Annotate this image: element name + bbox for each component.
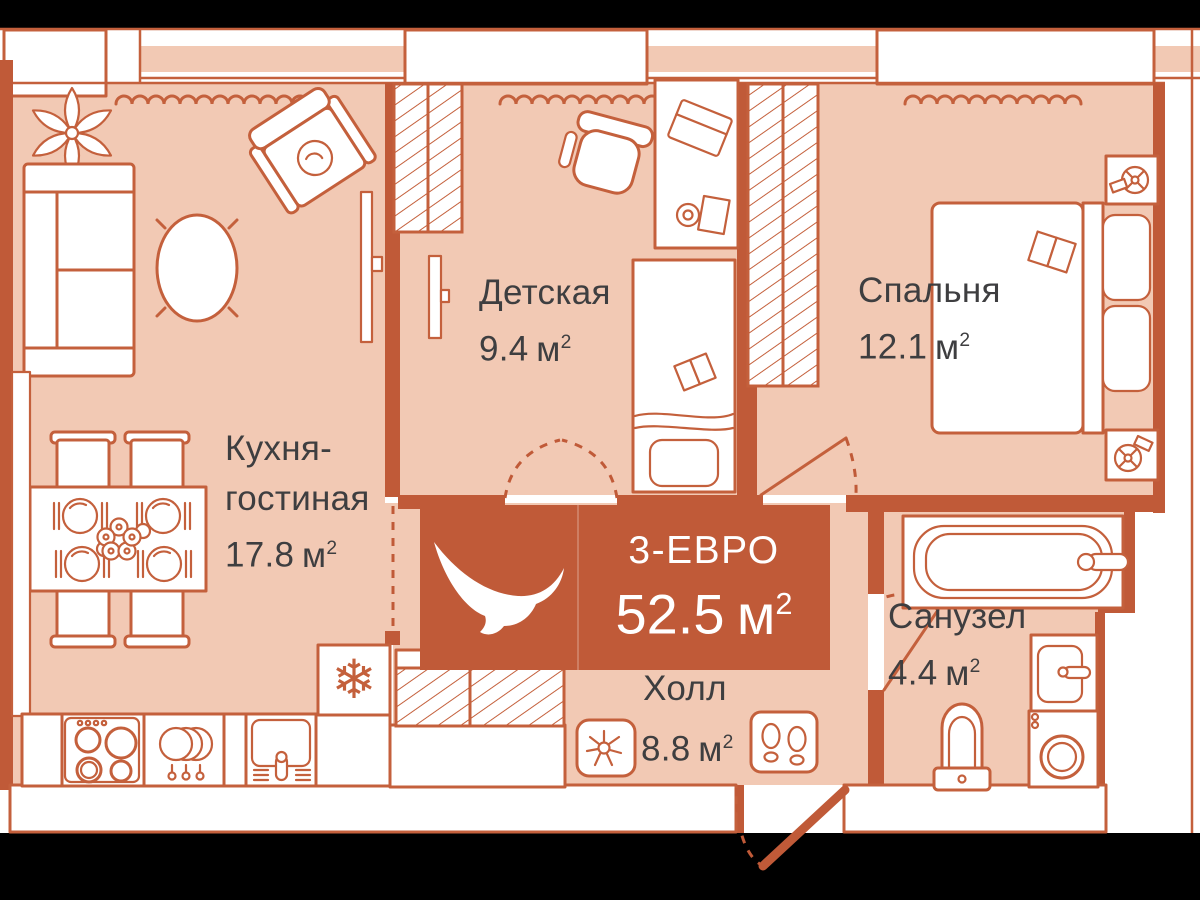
room-area: 17.8м2: [225, 524, 370, 581]
nightstand: [1106, 156, 1158, 204]
snowflake-icon: ❄: [331, 650, 376, 710]
window-sill: [647, 46, 877, 72]
bedroom-wardrobe: [748, 84, 818, 386]
fridge: ❄: [318, 645, 390, 715]
room-name: Холл: [620, 664, 750, 714]
hall-closet-niche: [390, 725, 565, 787]
stove: [65, 718, 139, 782]
room-name: Кухня-: [225, 424, 370, 474]
nursery-wardrobe: [394, 84, 462, 232]
room-name: Санузел: [888, 592, 1026, 642]
room-label-nursery: Детская 9.4м2: [479, 268, 611, 375]
room-name: Детская: [479, 268, 611, 318]
window-sill: [140, 46, 405, 72]
bottom-wall-band: [10, 785, 1106, 832]
room-label-bathroom: Санузел 4.4м2: [888, 592, 1026, 699]
desk: [655, 80, 738, 248]
wall-pier: [877, 30, 1154, 84]
sparkle-icon: [577, 720, 635, 776]
room-name: гостиная: [225, 474, 370, 524]
room-area: 12.1м2: [858, 316, 1001, 373]
nursery-bed: [633, 260, 735, 492]
cup: [677, 204, 699, 226]
washbasin: [1031, 635, 1097, 711]
layout-type-label: 3-ЕВРО: [628, 529, 779, 573]
room-name: Спальня: [858, 266, 1001, 316]
washing-machine: [1029, 711, 1098, 787]
room-label-bedroom: Спальня 12.1м2: [858, 266, 1001, 373]
wall-pier: [4, 30, 106, 96]
wall-pier: [405, 30, 647, 84]
sofa: [24, 164, 134, 376]
footprints-icon: [751, 712, 817, 772]
total-area-label: 52.5м2: [616, 573, 793, 646]
room-area: 4.4м2: [888, 642, 1026, 699]
coffee-table: [157, 215, 237, 321]
room-area-hall: 8.8м2: [641, 718, 734, 775]
floorplan-drawing: ❄: [0, 0, 1200, 900]
badge-text: 3-ЕВРО 52.5м2: [578, 505, 830, 670]
kitchen-sink: [252, 720, 310, 780]
room-label-kitchen-living: Кухня- гостиная 17.8м2: [225, 424, 370, 581]
room-area: 9.4м2: [479, 318, 611, 375]
nightstand: [1106, 430, 1158, 480]
notebook: [698, 196, 730, 234]
floorplan-screenshot: ❄: [0, 0, 1200, 900]
room-label-hall: Холл: [620, 664, 750, 714]
